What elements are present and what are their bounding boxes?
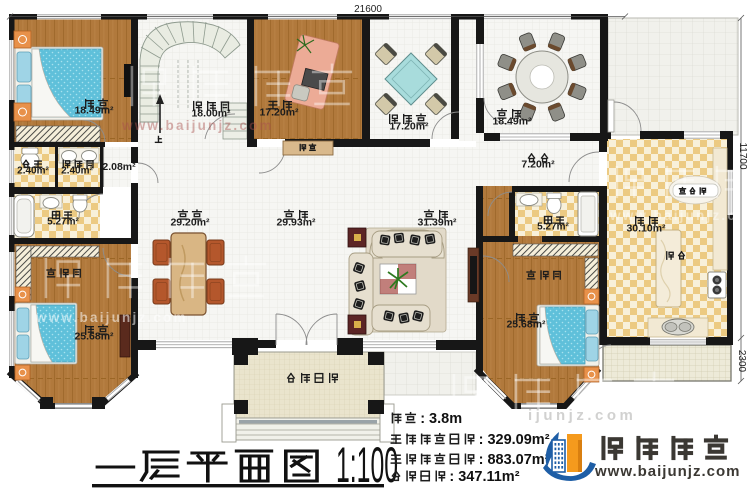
svg-text:17.20m²: 17.20m² [259,107,299,119]
svg-text:18.49m²: 18.49m² [74,105,114,117]
svg-text:5.27m²: 5.27m² [537,222,569,233]
svg-text:30.10m²: 30.10m² [626,223,666,235]
svg-text:29.93m²: 29.93m² [276,217,316,229]
svg-text:17.20m²: 17.20m² [389,121,429,133]
svg-text:25.68m²: 25.68m² [506,319,546,331]
svg-text:2.40m²: 2.40m² [61,166,93,177]
svg-text:11700: 11700 [737,142,748,170]
svg-text:www.baijunjz.com: www.baijunjz.com [594,463,740,480]
svg-text:: 883.07m²: : 883.07m² [479,452,550,468]
svg-text:29.20m²: 29.20m² [170,217,210,229]
svg-text:21600: 21600 [354,4,382,15]
svg-text:2.40m²: 2.40m² [17,166,49,177]
svg-text:: 329.09m²: : 329.09m² [479,432,550,448]
svg-text:18.00m²: 18.00m² [191,108,231,120]
svg-text:www.baijunjz.com: www.baijunjz.com [35,310,188,325]
svg-text:ijunjz.com: ijunjz.com [528,407,636,424]
svg-text:7.20m²: 7.20m² [521,159,555,171]
svg-text:www.baijunjz.com: www.baijunjz.com [609,208,750,223]
svg-text:www.baijunjz.com: www.baijunjz.com [121,118,274,133]
svg-text:31.39m²: 31.39m² [417,217,457,229]
svg-text:: 347.11m²: : 347.11m² [449,469,519,485]
svg-text:2.08m²: 2.08m² [102,161,136,173]
svg-text:18.49m²: 18.49m² [492,116,532,128]
svg-text:2300: 2300 [736,350,747,373]
svg-text:25.68m²: 25.68m² [74,331,114,343]
svg-text:: 3.8m: : 3.8m [420,411,462,427]
svg-text:5.27m²: 5.27m² [47,217,79,228]
